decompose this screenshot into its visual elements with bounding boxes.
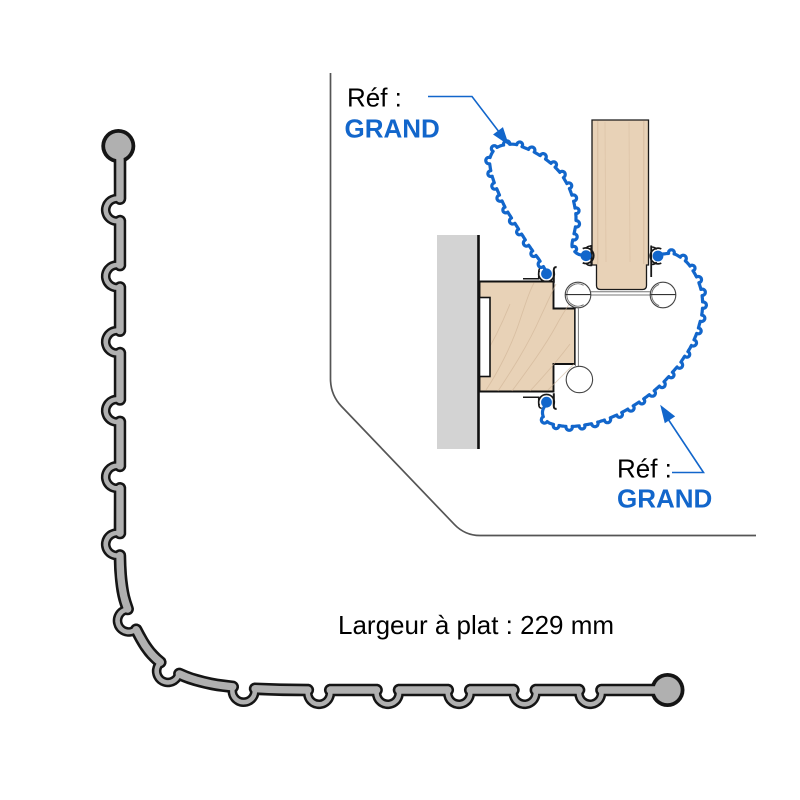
svg-text:GRAND: GRAND: [345, 114, 440, 144]
svg-text:GRAND: GRAND: [617, 484, 712, 514]
svg-text:Réf :: Réf :: [347, 83, 402, 113]
svg-text:Largeur à plat : 229 mm: Largeur à plat : 229 mm: [338, 610, 614, 640]
svg-text:Réf :: Réf :: [617, 454, 672, 484]
